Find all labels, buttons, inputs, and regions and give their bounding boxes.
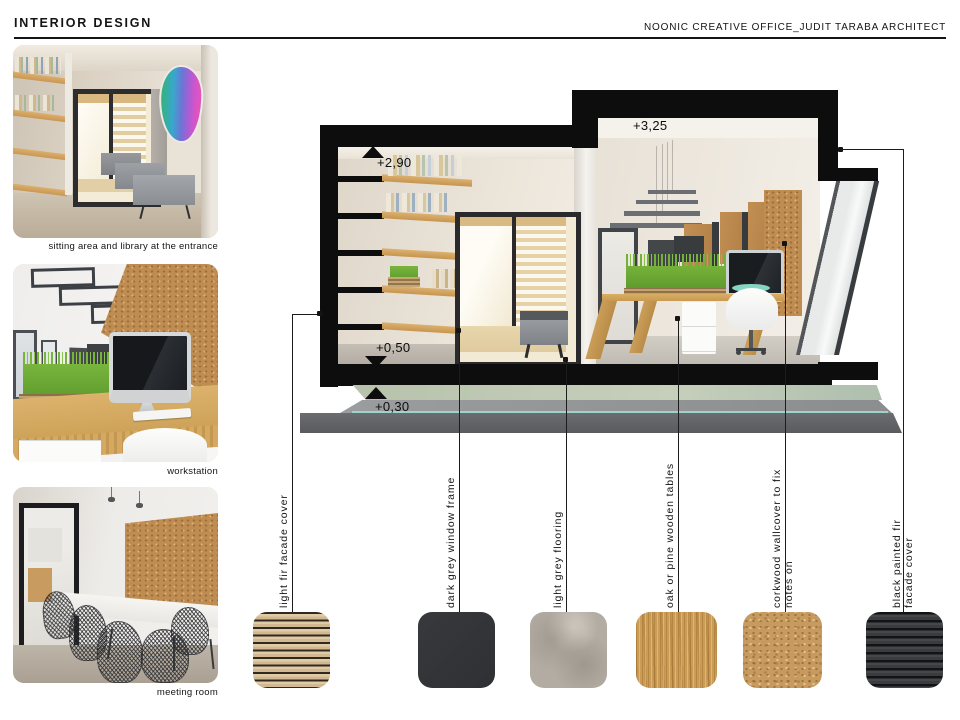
elevation-triangle-icon — [622, 106, 644, 118]
elevation-label: +3,25 — [633, 118, 667, 133]
office-ceiling — [596, 118, 820, 138]
leader-dot — [563, 357, 568, 362]
material-label-line: notes on — [783, 469, 795, 608]
bench-top — [520, 311, 568, 320]
elevation-label: +0,30 — [375, 399, 409, 414]
shelf-support — [338, 176, 384, 182]
pendant-light-bar — [624, 211, 700, 216]
presentation-board: INTERIOR DESIGN NOONIC CREATIVE OFFICE_J… — [0, 0, 960, 720]
leader-line — [678, 318, 679, 612]
shelf-support — [338, 213, 384, 219]
facade-fascia — [818, 168, 878, 181]
floor-slab-edge — [818, 362, 878, 380]
leader-dot — [675, 316, 680, 321]
material-swatch-black-fir — [866, 612, 943, 688]
leader-dot — [782, 241, 787, 246]
right-wall — [818, 90, 838, 169]
material-swatch-dark-grey — [418, 612, 495, 688]
material-label-line: dark grey window frame — [445, 477, 457, 608]
pendant-cord — [672, 140, 673, 190]
material-swatch-cork — [743, 612, 822, 688]
leader-dot — [838, 147, 843, 152]
leader-dot — [317, 311, 322, 316]
leader-dot — [456, 328, 461, 333]
elevation-label: +2,90 — [377, 155, 411, 170]
plant-box — [388, 277, 420, 287]
waterline-accent — [352, 411, 888, 413]
roof-step — [572, 90, 598, 148]
elevation-triangle-icon — [365, 356, 387, 368]
roof-slab-left — [320, 125, 578, 147]
insulation-strip — [350, 385, 882, 400]
material-label-line: oak or pine wooden tables — [664, 463, 676, 608]
shelf-support — [338, 250, 384, 256]
chair-caster — [736, 350, 741, 355]
floor-slab — [320, 364, 832, 386]
chair-post — [749, 330, 753, 348]
elevation-label: +0,50 — [376, 340, 410, 355]
material-swatch-oak — [636, 612, 717, 688]
chair-caster — [761, 350, 766, 355]
office-chair — [726, 288, 778, 330]
leader-line — [459, 331, 460, 612]
shelf-support — [338, 287, 384, 293]
material-label-line: light grey flooring — [552, 511, 564, 608]
pendant-light-bar — [636, 200, 698, 204]
roof-slab-right — [572, 90, 838, 118]
door-open-leaf — [460, 226, 512, 326]
leader-line — [566, 359, 567, 612]
pendant-light-bar — [648, 190, 696, 194]
material-label-line: light fir facade cover — [278, 494, 290, 608]
material-swatch-light-grey — [530, 612, 607, 688]
grass-planter — [626, 266, 726, 290]
material-label-line: black painted fir — [891, 519, 903, 608]
leader-line — [841, 149, 904, 150]
ground-platform — [300, 413, 902, 433]
material-swatch-light-fir — [253, 612, 330, 688]
shelf-support — [338, 324, 384, 330]
books-row — [386, 193, 448, 212]
material-label-line: facade cover — [903, 519, 915, 608]
drawer-unit — [682, 302, 716, 354]
bench — [520, 320, 568, 345]
leader-line — [292, 314, 293, 612]
left-wall — [320, 125, 338, 387]
elevation-triangle-icon — [365, 387, 387, 399]
material-label-line: corkwood wallcover to fix — [771, 469, 783, 608]
